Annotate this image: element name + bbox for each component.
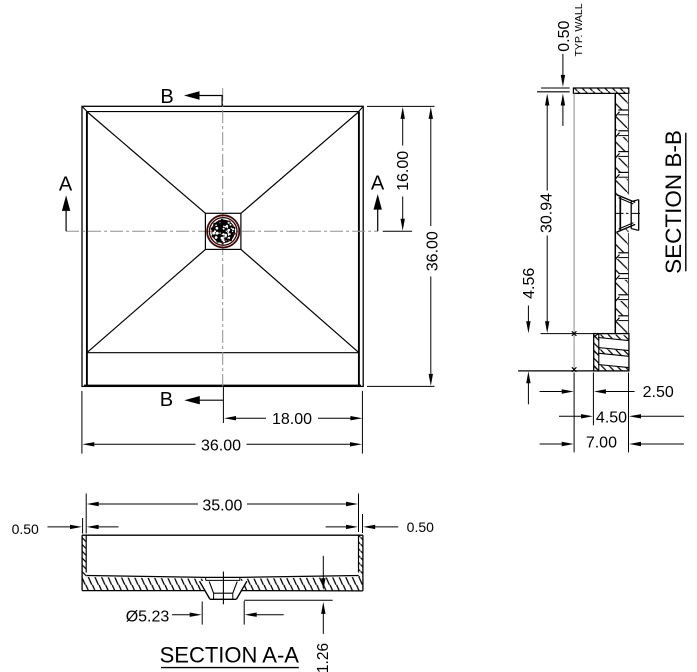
svg-text:TYP. WALL: TYP. WALL xyxy=(573,3,585,56)
svg-text:SECTION B-B: SECTION B-B xyxy=(661,130,686,274)
svg-text:36.00: 36.00 xyxy=(201,437,241,454)
svg-text:4.50: 4.50 xyxy=(596,409,627,426)
svg-text:A: A xyxy=(371,173,385,195)
svg-text:B: B xyxy=(160,389,173,411)
svg-text:2.50: 2.50 xyxy=(643,384,674,401)
svg-text:36.00: 36.00 xyxy=(424,231,441,271)
svg-text:18.00: 18.00 xyxy=(272,411,312,428)
svg-text:16.00: 16.00 xyxy=(395,151,412,191)
svg-text:0.50: 0.50 xyxy=(407,519,434,535)
svg-text:30.94: 30.94 xyxy=(539,193,556,233)
svg-text:1.26: 1.26 xyxy=(315,643,332,672)
svg-text:A: A xyxy=(59,173,73,195)
svg-text:7.00: 7.00 xyxy=(586,435,617,452)
svg-text:4.56: 4.56 xyxy=(521,268,538,299)
svg-text:B: B xyxy=(160,86,173,108)
svg-text:Ø5.23: Ø5.23 xyxy=(126,608,170,625)
svg-text:35.00: 35.00 xyxy=(202,498,242,515)
svg-text:0.50: 0.50 xyxy=(556,21,573,52)
svg-text:0.50: 0.50 xyxy=(12,521,39,537)
svg-text:SECTION A-A: SECTION A-A xyxy=(160,643,300,668)
